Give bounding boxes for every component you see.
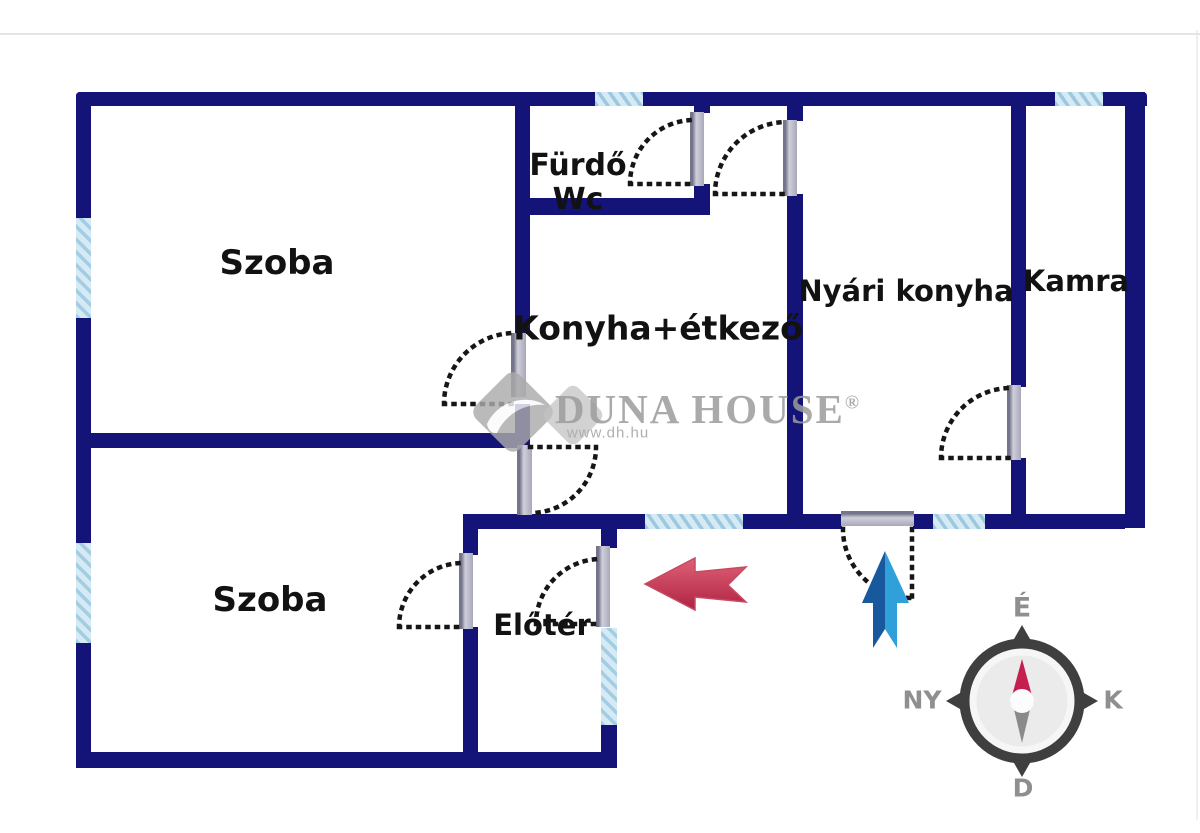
compass-label-west: NY [902, 686, 941, 715]
room-label-nyari-konyha: Nyári konyha [798, 274, 1013, 308]
floor-plan: Szoba Fürdő Wc Konyha+étkező Nyári konyh… [0, 0, 1200, 833]
compass-label-south: D [1013, 774, 1034, 803]
door-swing-arc [530, 447, 596, 513]
entrance-arrow-up-icon [862, 551, 909, 648]
compass-rose-icon [946, 625, 1098, 777]
door-swing-arc [715, 122, 787, 194]
door-swing-arc [941, 388, 1011, 458]
room-label-furdo-wc: Fürdő Wc [529, 149, 626, 217]
compass-hub [1010, 689, 1034, 713]
room-label-szoba-2: Szoba [213, 580, 328, 620]
compass-label-north: É [1013, 593, 1031, 624]
room-label-furdo-line2: Wc [529, 183, 626, 217]
registered-mark: ® [845, 392, 861, 413]
watermark-website: www.dh.hu [567, 425, 649, 442]
room-label-furdo-line1: Fürdő [529, 149, 626, 183]
door-swing-arc [630, 120, 694, 184]
entrance-arrow-left-icon [645, 558, 746, 610]
room-label-eloter: Előtér [493, 608, 591, 642]
room-label-kamra: Kamra [1023, 264, 1129, 298]
compass-label-east: K [1103, 686, 1122, 715]
door-swing-arc [399, 563, 463, 627]
room-label-konyha-etkezo: Konyha+étkező [513, 309, 803, 348]
room-label-szoba-1: Szoba [220, 243, 335, 283]
door-swing-arcs [399, 120, 1011, 627]
